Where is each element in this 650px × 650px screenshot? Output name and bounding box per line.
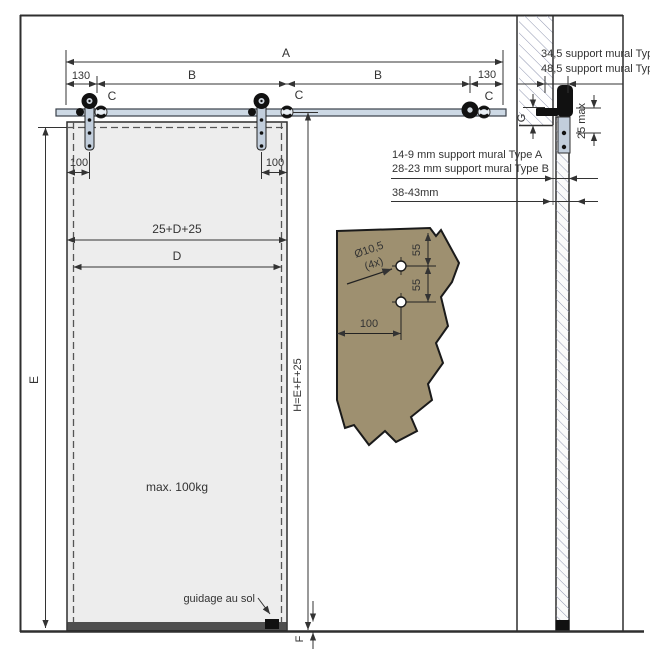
door-section-hatch [556, 117, 569, 630]
dim-label-100-right: 100 [266, 157, 284, 169]
dim-label-b-left: B [188, 68, 196, 82]
drill-hole-top [396, 261, 406, 271]
dim-label-25max: 25 max [576, 102, 588, 139]
technical-drawing: A 130 B B 130 C C C 100 100 25+D+25 D E … [0, 0, 650, 650]
max-weight-label: max. 100kg [146, 480, 208, 494]
fragment-shape [337, 228, 459, 445]
dim-label-130-right: 130 [478, 69, 496, 81]
dim-label-f: F [294, 635, 306, 642]
dim-label-h: H=E+F+25 [292, 358, 304, 412]
wall-gap-type-a-label: 14-9 mm support mural Type A [392, 149, 543, 161]
detail-ref-c2: C [295, 88, 304, 102]
detail-ref-c3: C [485, 89, 494, 103]
dim-label-total-width: 25+D+25 [152, 222, 202, 236]
support-type-a-label: 34,5 support mural Type A [541, 48, 650, 60]
dim-label-e: E [27, 376, 41, 384]
dim-label-d: D [173, 249, 182, 263]
strap-bolt-icon [562, 145, 566, 149]
detail-fragment: Ø10,5 (4x) 55 55 100 [337, 228, 459, 445]
wall-bracket-bolt [536, 108, 558, 116]
wall-gap-type-b-label: 28-23 mm support mural Type B [392, 163, 549, 175]
support-type-b-label: 48,5 support mural Type B [541, 63, 650, 75]
dim-label-100-left: 100 [70, 157, 88, 169]
floor-guide-section [556, 620, 570, 630]
dim-label-130-left: 130 [72, 70, 90, 82]
floor-guide-elevation [265, 619, 279, 629]
total-thickness-label: 38-43mm [392, 187, 438, 199]
door-face [67, 122, 287, 630]
hole-spacing-top-label: 55 [411, 244, 423, 256]
detail-ref-c1: C [108, 89, 117, 103]
dim-label-g: G [516, 114, 528, 123]
door-bottom-edge [68, 622, 287, 630]
door-panel [67, 122, 287, 630]
roller-side-view [557, 85, 573, 117]
hanger-right-end [462, 102, 491, 119]
dim-label-b-right: B [374, 68, 382, 82]
dim-label-a: A [282, 46, 290, 60]
hole-spacing-bottom-label: 55 [411, 279, 423, 291]
drill-hole-bottom [396, 297, 406, 307]
strap-bolt-icon [562, 131, 566, 135]
floor-guide-label: guidage au sol [183, 593, 255, 605]
edge-distance-label: 100 [360, 318, 378, 330]
